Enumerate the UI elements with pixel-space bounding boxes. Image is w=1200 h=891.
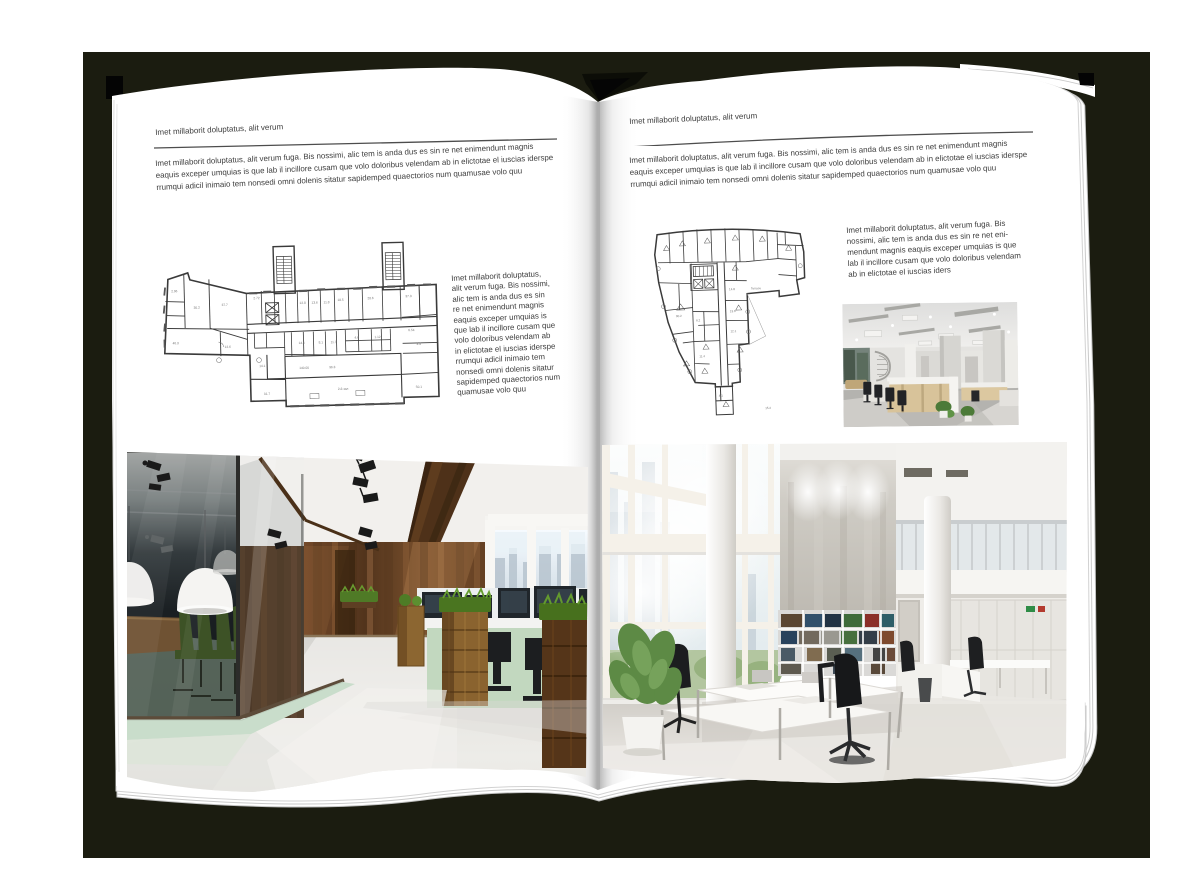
svg-text:2-й зал: 2-й зал	[338, 387, 349, 391]
svg-text:8.1: 8.1	[319, 340, 324, 344]
svg-text:0.54: 0.54	[408, 328, 415, 332]
svg-text:18.5: 18.5	[337, 298, 344, 302]
svg-text:15.2: 15.2	[765, 406, 771, 410]
svg-text:14.6: 14.6	[299, 341, 306, 345]
svg-text:14.8: 14.8	[729, 287, 735, 291]
svg-text:2.72: 2.72	[253, 296, 260, 300]
svg-text:12.8: 12.8	[299, 301, 306, 305]
svg-text:14.1: 14.1	[259, 364, 266, 368]
svg-text:40.3: 40.3	[172, 341, 179, 345]
svg-text:11.8: 11.8	[323, 300, 329, 304]
svg-text:96.3: 96.3	[329, 365, 336, 369]
svg-text:11.4: 11.4	[699, 354, 705, 358]
svg-text:37.7: 37.7	[222, 303, 229, 307]
svg-text:4.8: 4.8	[417, 342, 422, 346]
svg-text:2.06: 2.06	[171, 289, 178, 293]
svg-text:28.6: 28.6	[367, 296, 374, 300]
svg-text:37.3: 37.3	[405, 294, 412, 298]
svg-text:4.6: 4.6	[354, 335, 359, 339]
svg-text:6.2: 6.2	[696, 318, 701, 322]
svg-text:4.1: 4.1	[719, 394, 724, 398]
svg-text:140.00: 140.00	[299, 366, 309, 370]
svg-text:31.7: 31.7	[264, 392, 271, 396]
svg-text:30.2: 30.2	[194, 306, 201, 310]
svg-text:Terrace: Terrace	[751, 286, 761, 290]
svg-text:11.7: 11.7	[331, 340, 337, 344]
svg-text:1.12: 1.12	[374, 335, 381, 339]
svg-text:50.1: 50.1	[416, 385, 423, 389]
svg-text:13.6: 13.6	[730, 309, 736, 313]
svg-text:30.2: 30.2	[676, 314, 682, 318]
svg-text:13.6: 13.6	[311, 301, 318, 305]
svg-text:12.6: 12.6	[225, 345, 232, 349]
svg-text:12.1: 12.1	[730, 329, 736, 333]
